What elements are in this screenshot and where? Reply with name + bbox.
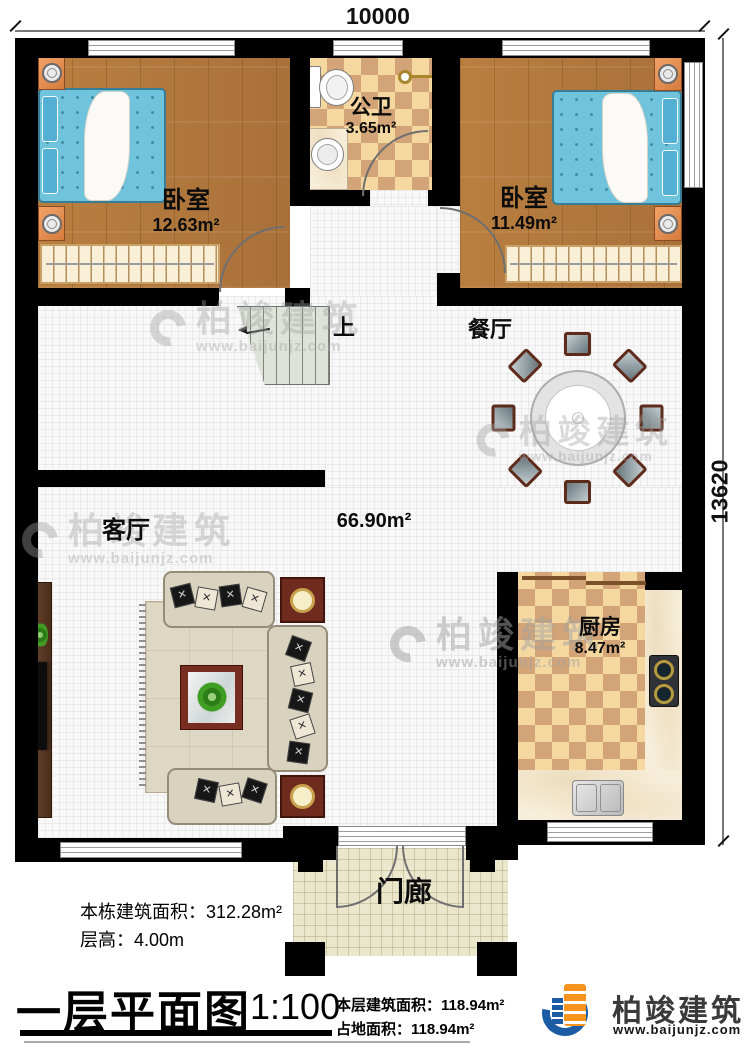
dining-chair xyxy=(640,405,664,432)
nightstand xyxy=(38,55,65,90)
dimension-height: 13620 xyxy=(707,432,734,552)
stairs-direction: 上 xyxy=(328,316,360,341)
side-table xyxy=(280,775,325,818)
wall xyxy=(15,288,219,306)
lamp-icon xyxy=(42,214,62,234)
window xyxy=(547,822,653,842)
nightstand xyxy=(654,56,682,91)
dining-label: 餐厅 xyxy=(452,318,528,343)
window xyxy=(502,40,650,56)
floor-plan-sheet: 柏竣建筑 www.baijunjz.com 柏竣建筑 www.baijunjz.… xyxy=(0,0,750,1054)
wall xyxy=(460,288,682,306)
room-area: 12.63m² xyxy=(126,215,246,235)
bathroom-sink-inner xyxy=(317,144,338,165)
bed-sheet xyxy=(602,93,648,203)
note-value: 312.28m² xyxy=(206,902,282,922)
room-area: 8.47m² xyxy=(558,640,642,658)
note-label: 占地面积： xyxy=(336,1021,411,1038)
porch-pillar xyxy=(477,942,517,976)
bathroom-label: 公卫 3.65m² xyxy=(330,96,412,137)
window xyxy=(333,40,403,56)
lamp-icon xyxy=(658,214,678,234)
dining-chair xyxy=(492,405,516,432)
pillow xyxy=(218,782,242,806)
pillow xyxy=(42,96,58,142)
pillow xyxy=(194,586,218,610)
porch-pillar xyxy=(285,942,325,976)
building-area-note: 本栋建筑面积：312.28m² xyxy=(80,898,282,924)
wardrobe-right xyxy=(505,245,682,283)
bedroom-right-label: 卧室 11.49m² xyxy=(464,186,584,233)
logo-building-blue xyxy=(552,998,563,1024)
pillow xyxy=(662,98,678,144)
pillow xyxy=(662,150,678,196)
nightstand xyxy=(38,206,65,241)
logo-building-orange xyxy=(564,984,586,1026)
wall xyxy=(285,288,310,306)
door-leaf xyxy=(336,846,338,908)
note-value: 118.94m² xyxy=(411,1021,474,1038)
dining-chair xyxy=(564,480,591,504)
pillow xyxy=(290,662,315,687)
towel-ring-arm xyxy=(410,75,432,78)
lamp-icon xyxy=(658,64,678,84)
window xyxy=(88,40,235,56)
living-label: 客厅 xyxy=(88,518,164,545)
wall xyxy=(290,190,370,206)
floor-height-note: 层高：4.00m xyxy=(80,926,184,952)
sink-basin xyxy=(576,784,597,812)
dimension-line-top xyxy=(15,30,705,32)
open-area-label: 66.90m² xyxy=(326,510,422,532)
pillow xyxy=(42,148,58,194)
dining-table-center xyxy=(572,412,584,424)
burner-icon xyxy=(654,660,674,680)
pillow xyxy=(219,584,243,608)
wall xyxy=(290,38,310,206)
room-area: 66.90m² xyxy=(326,510,422,532)
wardrobe-left xyxy=(40,244,220,284)
wall xyxy=(15,38,38,862)
brand-website: www.baijunjz.com xyxy=(613,1022,741,1037)
porch-threshold xyxy=(338,826,466,846)
sheet-scale: 1:100 xyxy=(250,986,340,1028)
porch-label: 门廊 xyxy=(364,876,444,907)
title-underline xyxy=(20,1030,332,1036)
door-leaf xyxy=(462,846,464,908)
side-table xyxy=(280,577,325,623)
burner-icon xyxy=(654,684,674,704)
bedroom-left-label: 卧室 12.63m² xyxy=(126,188,246,235)
footprint-note: 占地面积：118.94m² xyxy=(336,1018,474,1039)
room-name: 公卫 xyxy=(330,96,412,120)
floor-area-note: 本层建筑面积：118.94m² xyxy=(336,994,504,1015)
room-name: 客厅 xyxy=(88,518,164,545)
room-area: 3.65m² xyxy=(330,120,412,138)
window xyxy=(60,842,242,858)
sink-basin xyxy=(600,784,621,812)
wall xyxy=(15,470,325,487)
pillow xyxy=(194,778,219,803)
kitchen-label: 厨房 8.47m² xyxy=(558,616,642,657)
dining-chair xyxy=(564,332,591,356)
dimension-width: 10000 xyxy=(318,3,438,30)
room-name: 卧室 xyxy=(464,186,584,213)
note-label: 层高： xyxy=(80,930,134,950)
hall-floor xyxy=(310,206,437,306)
stair-arrow-head xyxy=(238,326,247,334)
title-underline-thin xyxy=(24,1041,470,1043)
porch-pillar xyxy=(298,852,323,872)
brand-logo-icon xyxy=(540,982,606,1044)
room-name: 餐厅 xyxy=(452,318,528,343)
note-label: 本栋建筑面积： xyxy=(80,902,206,922)
bed-sheet xyxy=(84,91,130,201)
sliding-door-panel xyxy=(522,576,586,580)
wall xyxy=(645,572,705,590)
room-name: 卧室 xyxy=(126,188,246,215)
tv xyxy=(37,662,47,750)
window xyxy=(684,62,703,188)
note-label: 本层建筑面积： xyxy=(336,997,441,1014)
room-name: 门廊 xyxy=(364,876,444,907)
kitchen-floor xyxy=(518,572,645,770)
room-name: 厨房 xyxy=(558,616,642,640)
porch-pillar xyxy=(470,852,495,872)
pillow xyxy=(287,741,311,765)
note-value: 118.94m² xyxy=(441,997,504,1014)
wall xyxy=(437,273,460,306)
wall xyxy=(428,190,460,206)
sliding-door-panel xyxy=(586,581,646,585)
lamp-icon xyxy=(42,63,62,83)
note-value: 4.00m xyxy=(134,930,184,950)
wall xyxy=(497,572,518,845)
nightstand xyxy=(654,206,682,241)
wall xyxy=(432,38,460,206)
room-area: 11.49m² xyxy=(464,213,584,233)
stairs-up-label: 上 xyxy=(328,316,360,341)
